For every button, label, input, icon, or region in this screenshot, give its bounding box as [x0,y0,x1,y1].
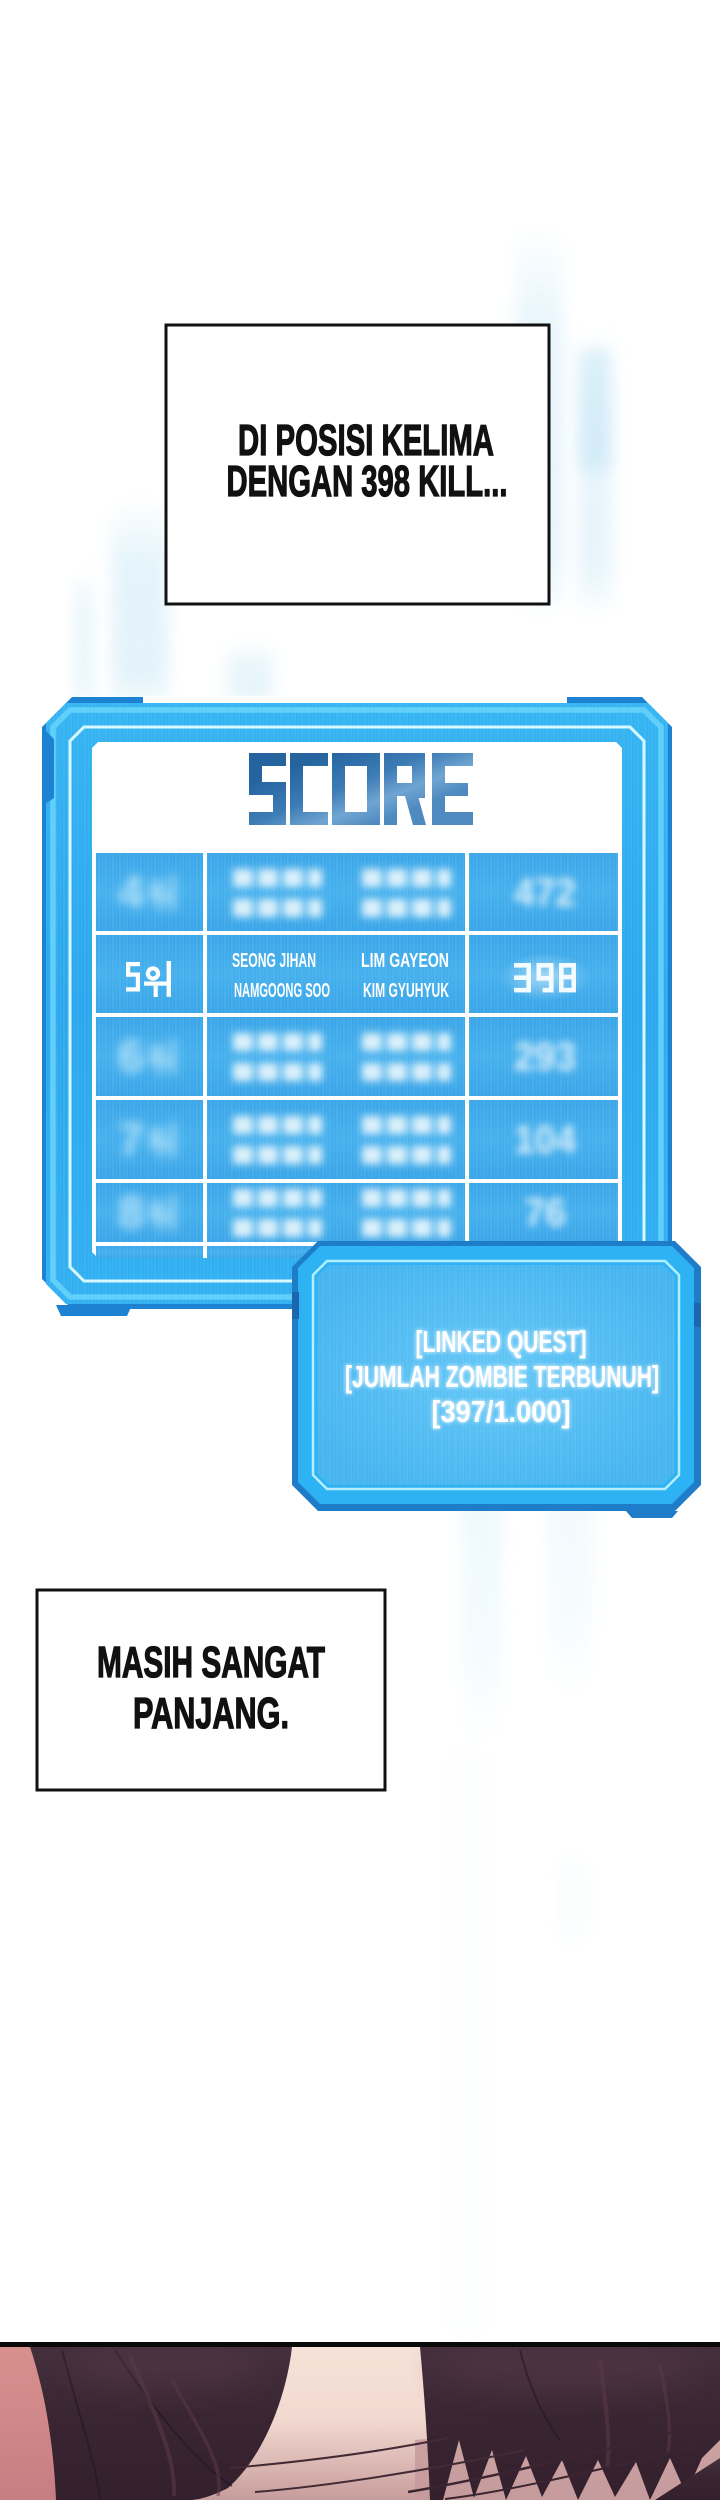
svg-text:472: 472 [514,871,576,915]
svg-text:PANJANG.: PANJANG. [133,1689,289,1738]
svg-text:[JUMLAH ZOMBIE TERBUNUH]: [JUMLAH ZOMBIE TERBUNUH] [345,1359,659,1394]
svg-text:MASIH SANGAT: MASIH SANGAT [97,1638,325,1687]
svg-text:6: 6 [118,1030,144,1082]
svg-text:7: 7 [118,1113,144,1165]
svg-text:104: 104 [514,1118,577,1162]
svg-text:[LINKED QUEST]: [LINKED QUEST] [416,1324,587,1359]
svg-text:293: 293 [514,1035,576,1079]
svg-text:KIM GYUHYUK: KIM GYUHYUK [363,980,449,1002]
svg-text:NAMGOONG SOO: NAMGOONG SOO [234,980,330,1002]
svg-text:76: 76 [524,1191,566,1235]
svg-text:LIM GAYEON: LIM GAYEON [361,950,449,972]
svg-text:8: 8 [118,1186,144,1238]
svg-text:SEONG JIHAN: SEONG JIHAN [232,950,316,972]
svg-text:DENGAN 398 KILL...: DENGAN 398 KILL... [227,457,508,506]
svg-text:4: 4 [118,866,144,918]
svg-text:[397/1.000]: [397/1.000] [432,1394,571,1429]
